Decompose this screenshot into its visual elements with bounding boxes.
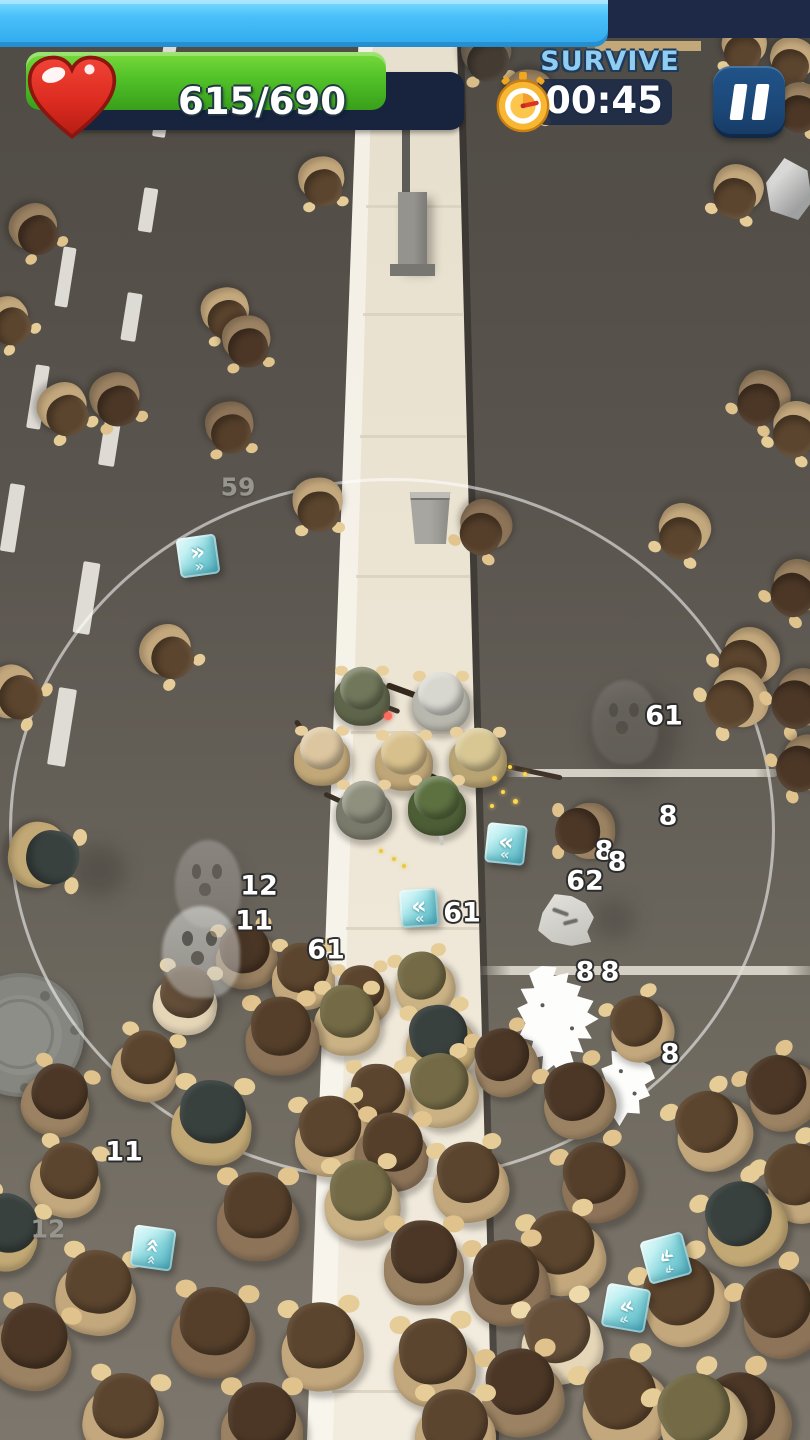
timer-value: 00:45	[536, 77, 672, 123]
sidewalk-seam	[360, 435, 467, 438]
chevron-icon: «	[194, 559, 206, 575]
zombie	[215, 309, 278, 375]
damage-number: 8	[576, 957, 595, 988]
zombie	[701, 155, 774, 230]
damage-number: 61	[645, 701, 683, 732]
game-viewport[interactable]: « «« «« «« «« «« « 596188862121161618881…	[0, 0, 810, 1440]
damage-number: 8	[601, 957, 620, 988]
muzzle-spark	[508, 765, 512, 769]
damage-number: 59	[221, 473, 256, 502]
zombie	[164, 1072, 260, 1173]
loot-cube: « «	[399, 888, 440, 929]
muzzle-spark	[379, 849, 383, 853]
monument-block	[398, 192, 427, 268]
soldier	[332, 777, 396, 844]
zombie	[288, 473, 349, 537]
zombie	[163, 1278, 265, 1385]
lane-dash	[54, 246, 76, 307]
ghost-eye	[192, 864, 202, 879]
soldier-helmet	[340, 667, 385, 710]
health-value: 615/690	[60, 72, 464, 130]
soldier-helmet	[418, 672, 464, 716]
pause-icon	[729, 84, 747, 120]
zombie-head	[391, 1220, 456, 1283]
zombie	[237, 989, 326, 1083]
ghost	[162, 906, 240, 998]
zombie	[0, 284, 46, 360]
lane-dash	[120, 292, 142, 342]
damage-number: 8	[659, 801, 678, 832]
ghost-eye	[212, 864, 222, 879]
heart-icon	[26, 54, 118, 142]
zombie	[754, 545, 810, 632]
damage-number: 11	[105, 1137, 143, 1168]
muzzle-spark	[402, 864, 406, 868]
damage-number: 8	[608, 847, 627, 878]
ghost-mouth	[191, 951, 204, 965]
zombie	[216, 1377, 308, 1440]
objective-panel: SURVIVE 00:45	[480, 44, 700, 144]
lane-dash	[138, 187, 159, 233]
muzzle-spark	[513, 799, 518, 804]
damage-number: 12	[31, 1215, 66, 1244]
xp-progress-fill	[0, 0, 608, 47]
pause-icon	[751, 84, 769, 120]
tracer-beam	[478, 966, 810, 975]
loot-cube: « «	[601, 1283, 652, 1334]
damage-number: 8	[661, 1039, 680, 1070]
chevron-icon: «	[140, 1237, 166, 1256]
damage-number: 62	[566, 866, 604, 897]
chevron-icon: «	[499, 847, 510, 863]
chevron-icon: «	[414, 911, 425, 927]
soldier	[404, 772, 470, 841]
ghost-mouth	[199, 883, 210, 896]
soldier-helmet	[342, 781, 387, 824]
soldier-helmet	[455, 728, 501, 772]
soldier-helmet	[381, 731, 427, 775]
damage-number: 61	[443, 898, 481, 929]
soldier-helmet	[300, 727, 345, 770]
soldier-helmet	[414, 776, 460, 820]
ghost-eye	[629, 703, 639, 717]
damage-number: 12	[240, 871, 278, 902]
pause-button[interactable]	[713, 66, 785, 138]
loot-cube: « «	[175, 533, 220, 578]
lane-dash	[0, 483, 25, 553]
zombie-head	[768, 738, 810, 800]
muzzle-spark	[523, 772, 527, 776]
muzzle-spark	[501, 790, 505, 794]
loot-cube: « «	[484, 822, 528, 866]
sidewalk-seam	[363, 313, 464, 316]
chevron-icon: «	[143, 1254, 159, 1266]
zombie	[292, 150, 353, 213]
zombie-head	[224, 1172, 292, 1238]
zombie	[71, 1361, 176, 1440]
muzzle-spark	[384, 712, 392, 720]
monument-base	[390, 264, 435, 276]
zombie	[198, 395, 261, 461]
zombie	[0, 813, 89, 899]
stopwatch-icon	[492, 70, 554, 134]
zombie	[380, 1215, 468, 1308]
health-bar: 615/690	[26, 52, 466, 144]
damage-number: 61	[307, 935, 345, 966]
zombie	[410, 1384, 500, 1440]
soldier	[330, 663, 394, 730]
zombie	[644, 492, 723, 572]
rock	[766, 158, 810, 220]
muzzle-spark	[392, 857, 396, 861]
ghost-mouth	[616, 721, 627, 734]
damage-number: 11	[235, 906, 273, 937]
zombie	[212, 1167, 304, 1265]
loot-cube: « «	[129, 1224, 176, 1271]
zombie-head	[320, 985, 375, 1038]
muzzle-spark	[490, 804, 494, 808]
zombie-head	[555, 808, 600, 854]
muzzle-spark	[492, 776, 497, 781]
